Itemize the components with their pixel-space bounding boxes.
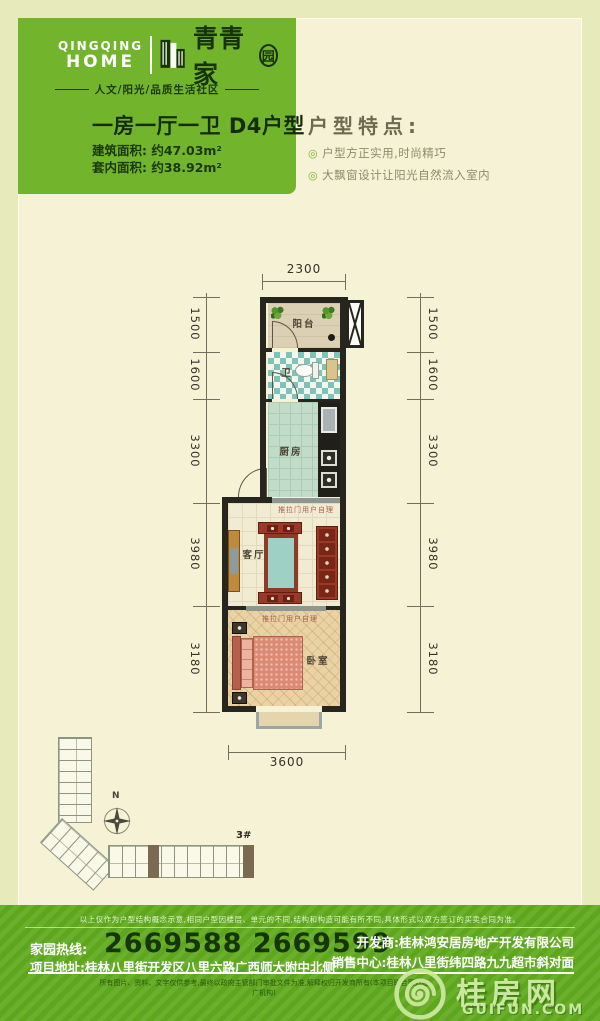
- siteplan-wing-horizontal: [108, 845, 254, 878]
- wall: [222, 706, 256, 712]
- wall: [260, 348, 272, 352]
- dim-left: 1500: [188, 302, 202, 346]
- tagline-dash: [225, 89, 259, 90]
- kitchen-sink: [321, 407, 337, 433]
- bathroom-label: 卫: [280, 365, 294, 379]
- wall: [260, 297, 348, 303]
- dim-left: 3180: [188, 637, 202, 681]
- dim-tick: [345, 274, 346, 290]
- stove-burner: [321, 450, 337, 466]
- siteplan-unit-highlight: [148, 845, 159, 878]
- nightstand: [232, 622, 247, 634]
- inner-area: 套内面积: 约38.92m²: [92, 157, 222, 176]
- disclaimer-bottom: 所有图片、资料、文字仅供参考,最终以政府主管部门审批文件为准,解释权归开发商所有…: [96, 978, 432, 998]
- kitchen-label: 厨房: [270, 444, 312, 458]
- dim-right: 3180: [426, 637, 440, 681]
- brand-logo: QINGQING HOME 青青家 园: [58, 32, 278, 78]
- wall: [260, 399, 272, 402]
- dim-top: 2300: [262, 262, 346, 276]
- watermark-spiral-icon: [392, 967, 448, 1021]
- north-label: N: [112, 791, 120, 801]
- wall: [228, 606, 246, 610]
- door-leaf: [266, 468, 267, 497]
- tagline-dash: [55, 89, 89, 90]
- floor-drain: [328, 334, 335, 341]
- brand-panel: QINGQING HOME 青青家 园 人文/阳光/品质生活社区: [18, 18, 296, 194]
- stove-burner: [321, 472, 337, 488]
- features-heading: 户型特点:: [308, 110, 572, 139]
- unit-title: 一房一厅一卫 D4户型: [92, 110, 305, 140]
- buildings-icon: [159, 35, 186, 75]
- yuan-circle-icon: 园: [259, 44, 278, 67]
- hotline-label: 家园热线:: [30, 939, 87, 958]
- wall: [298, 399, 346, 402]
- bay-window: [256, 712, 322, 729]
- dim-right: 1600: [426, 353, 440, 397]
- sliding-door-threshold: [272, 498, 340, 503]
- footer-band: 以上仅作为户型结构概念示意,相同户型因楼层、单元的不同,结构和构造可能有所不同,…: [0, 905, 600, 1021]
- dim-top-line: [262, 281, 346, 282]
- wall: [298, 348, 346, 352]
- feature-item: ◎ 大飘窗设计让阳光自然流入室内: [308, 167, 572, 183]
- north-compass-icon: [100, 804, 134, 838]
- wall: [326, 606, 346, 610]
- siteplan-wing-vertical: [58, 737, 92, 823]
- dim-left: 1600: [188, 353, 202, 397]
- feature-bullet-icon: ◎: [308, 147, 318, 160]
- dim-tick: [193, 503, 220, 504]
- watermark: 桂房网 GUIFUN.COM: [390, 967, 600, 1021]
- dim-bottom: 3600: [228, 755, 346, 769]
- sliding-door-note: 推拉门用户自理: [270, 505, 342, 515]
- door-leaf: [272, 372, 273, 399]
- duct-shaft-icon: [346, 300, 364, 348]
- bed-headboard: [232, 636, 241, 690]
- siteplan-unit-highlight: [243, 845, 254, 878]
- balcony-label: 阳台: [272, 316, 336, 330]
- dim-tick: [262, 274, 263, 290]
- feature-item: ◎ 户型方正实用,时尚精巧: [308, 145, 572, 161]
- bath-vanity: [326, 359, 338, 380]
- living-label: 客厅: [234, 547, 274, 561]
- dim-left: 3980: [188, 532, 202, 576]
- logo-divider: [150, 36, 152, 74]
- dim-right: 3300: [426, 429, 440, 473]
- dining-table: [264, 534, 298, 592]
- dining-chairs: [258, 592, 302, 604]
- dim-right: 1500: [426, 302, 440, 346]
- toilet-tank: [312, 362, 319, 379]
- flyer-page: QINGQING HOME 青青家 园 人文/阳光/品质生活社区: [0, 0, 600, 1021]
- nightstand: [232, 692, 247, 704]
- brand-name-en: QINGQING HOME: [58, 40, 143, 71]
- bed-pillows: [241, 638, 253, 688]
- bedroom-label: 卧室: [298, 653, 338, 667]
- wall: [322, 706, 346, 712]
- dining-chairs: [258, 522, 302, 534]
- sliding-door-note: 推拉门用户自理: [250, 614, 330, 624]
- wall: [222, 497, 272, 503]
- feature-bullet-icon: ◎: [308, 169, 318, 182]
- dim-tick: [407, 712, 434, 713]
- dim-right: 3980: [426, 532, 440, 576]
- features-section: 户型特点: ◎ 户型方正实用,时尚精巧 ◎ 大飘窗设计让阳光自然流入室内: [308, 110, 572, 183]
- dim-bottom-line: [228, 752, 346, 753]
- dim-left: 3300: [188, 429, 202, 473]
- bed: [253, 636, 303, 690]
- brand-name-cn: 青青家 园: [193, 19, 278, 91]
- developer-line: 开发商:桂林鸿安居房地产开发有限公司: [332, 933, 575, 953]
- dim-tick: [407, 297, 434, 298]
- dim-tick: [193, 399, 220, 400]
- dim-tick: [407, 606, 434, 607]
- watermark-name-en: GUIFUN.COM: [462, 1002, 584, 1018]
- dim-tick: [193, 712, 220, 713]
- brand-tagline: 人文/阳光/品质生活社区: [18, 82, 296, 97]
- sliding-door-threshold: [246, 606, 326, 611]
- dim-tick: [407, 503, 434, 504]
- disclaimer-top: 以上仅作为户型结构概念示意,相同户型因楼层、单元的不同,结构和构造可能有所不同,…: [0, 914, 600, 925]
- building-number-label: 3#: [236, 830, 251, 841]
- sofa: [316, 526, 338, 600]
- dim-tick: [193, 297, 220, 298]
- dim-tick: [407, 399, 434, 400]
- wall: [222, 497, 228, 712]
- dim-tick: [193, 606, 220, 607]
